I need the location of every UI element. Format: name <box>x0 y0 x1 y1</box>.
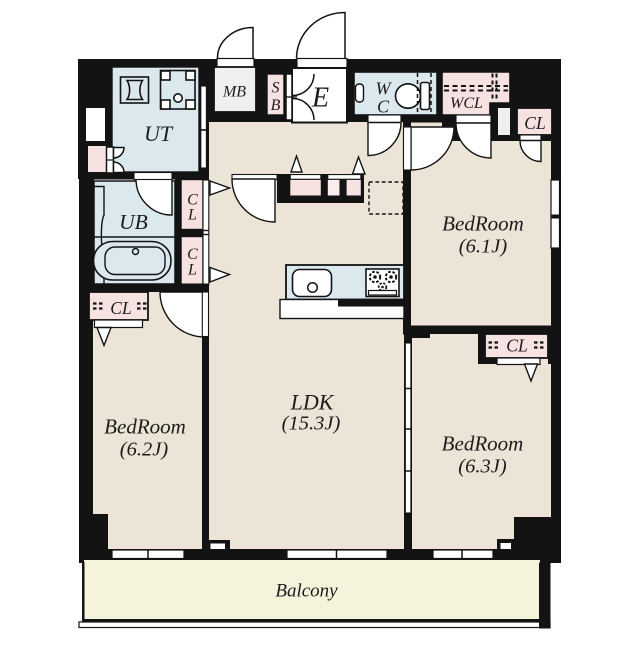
svg-text:L: L <box>187 207 197 224</box>
svg-text:WCL: WCL <box>450 95 483 112</box>
svg-text:C: C <box>377 97 390 117</box>
svg-text:BedRoom: BedRoom <box>104 415 186 439</box>
svg-text:CL: CL <box>506 336 527 356</box>
svg-text:BedRoom: BedRoom <box>442 212 524 236</box>
svg-text:E: E <box>311 83 329 114</box>
svg-text:(6.1J): (6.1J) <box>459 236 508 258</box>
svg-text:L: L <box>187 262 197 279</box>
svg-text:(15.3J): (15.3J) <box>282 413 341 435</box>
svg-text:BedRoom: BedRoom <box>442 432 524 456</box>
svg-text:B: B <box>271 97 281 114</box>
svg-text:UT: UT <box>144 121 174 146</box>
svg-text:(6.3J): (6.3J) <box>458 456 507 478</box>
svg-text:CL: CL <box>110 298 131 318</box>
svg-text:CL: CL <box>524 113 545 133</box>
svg-text:UB: UB <box>119 210 148 234</box>
svg-text:Balcony: Balcony <box>275 581 338 602</box>
svg-text:S: S <box>272 80 280 97</box>
svg-text:LDK: LDK <box>290 390 335 415</box>
svg-text:MB: MB <box>222 84 246 101</box>
svg-text:C: C <box>187 246 198 263</box>
svg-text:(6.2J): (6.2J) <box>120 439 169 461</box>
svg-text:W: W <box>376 79 393 99</box>
